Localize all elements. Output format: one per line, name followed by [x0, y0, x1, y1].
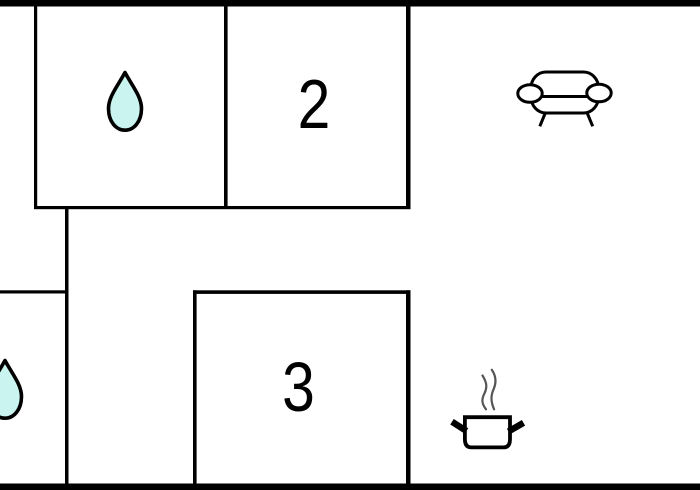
svg-text:2: 2 — [298, 64, 331, 143]
svg-text:3: 3 — [282, 347, 315, 426]
